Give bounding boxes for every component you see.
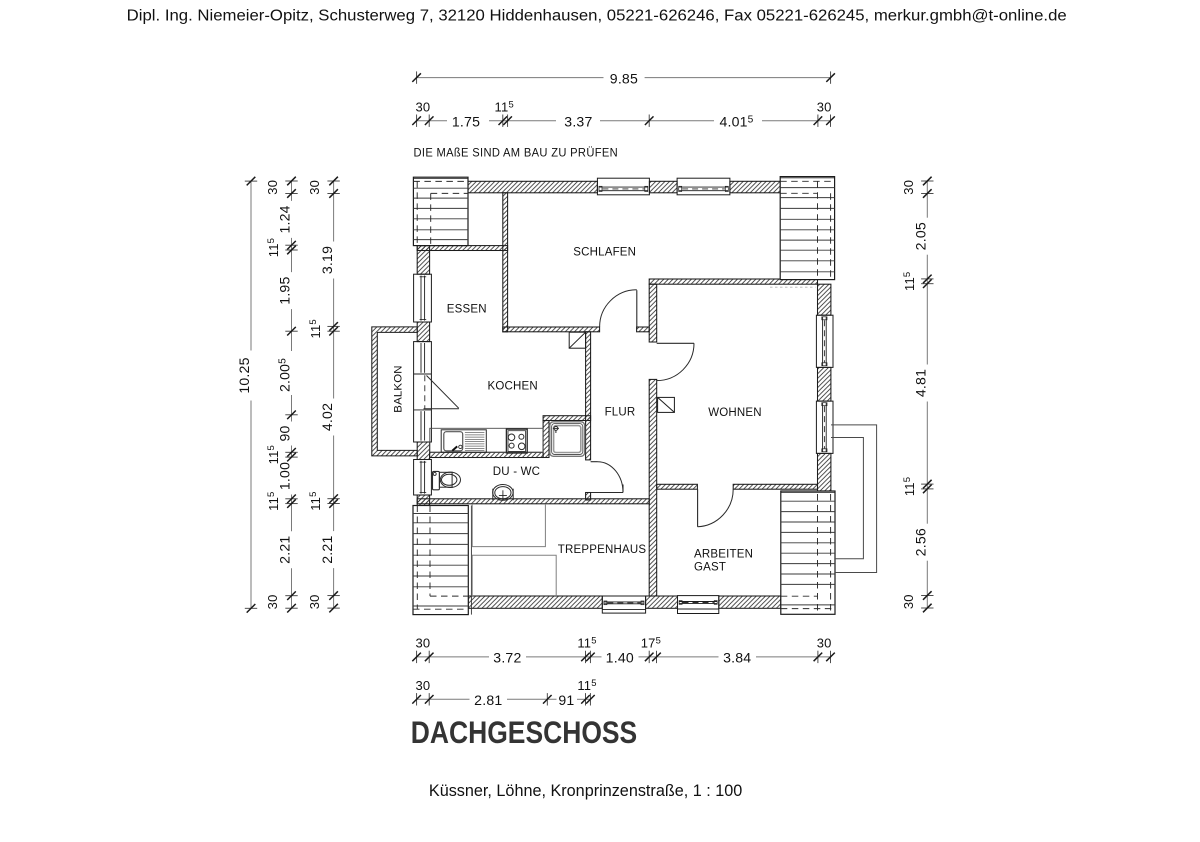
svg-text:4.81: 4.81 [913, 369, 929, 397]
svg-text:30: 30 [265, 180, 280, 195]
svg-text:FLUR: FLUR [605, 407, 636, 419]
svg-text:SCHLAFEN: SCHLAFEN [573, 247, 636, 259]
svg-text:Dipl. Ing. Niemeier-Opitz, Sch: Dipl. Ing. Niemeier-Opitz, Schusterweg 7… [127, 7, 1067, 24]
svg-text:4.02: 4.02 [319, 403, 335, 431]
svg-text:30: 30 [901, 180, 916, 195]
svg-text:ARBEITEN: ARBEITEN [694, 549, 753, 561]
svg-text:1.40: 1.40 [606, 650, 634, 666]
svg-text:ESSEN: ESSEN [447, 303, 487, 315]
svg-text:2.21: 2.21 [319, 535, 335, 563]
svg-text:30: 30 [415, 636, 430, 651]
svg-text:BALKON: BALKON [393, 365, 405, 412]
svg-text:2.21: 2.21 [277, 536, 293, 564]
svg-text:30: 30 [415, 99, 430, 114]
svg-text:9.85: 9.85 [610, 70, 638, 86]
svg-text:DACHGESCHOSS: DACHGESCHOSS [411, 714, 637, 750]
svg-text:1.95: 1.95 [277, 276, 293, 304]
svg-text:3.37: 3.37 [564, 113, 592, 129]
svg-text:3.19: 3.19 [319, 246, 335, 274]
svg-text:30: 30 [901, 594, 916, 609]
svg-text:DU - WC: DU - WC [493, 466, 540, 478]
svg-text:30: 30 [817, 99, 832, 114]
svg-text:1.00: 1.00 [277, 462, 293, 490]
svg-text:10.25: 10.25 [236, 357, 252, 393]
svg-text:30: 30 [415, 678, 430, 693]
svg-text:3.84: 3.84 [723, 650, 751, 666]
svg-text:3.72: 3.72 [493, 650, 521, 666]
svg-text:1.24: 1.24 [277, 205, 293, 233]
svg-text:2.56: 2.56 [913, 528, 929, 556]
svg-text:KOCHEN: KOCHEN [487, 381, 537, 393]
svg-text:DIE MAßE SIND AM BAU ZU PRÜFEN: DIE MAßE SIND AM BAU ZU PRÜFEN [414, 148, 619, 160]
svg-text:30: 30 [817, 636, 832, 651]
svg-text:TREPPENHAUS: TREPPENHAUS [558, 544, 647, 556]
svg-text:30: 30 [307, 180, 322, 195]
svg-text:2.81: 2.81 [474, 692, 502, 708]
svg-text:30: 30 [265, 594, 280, 609]
svg-text:WOHNEN: WOHNEN [708, 407, 762, 419]
svg-text:91: 91 [558, 692, 574, 708]
svg-text:GAST: GAST [694, 561, 726, 573]
svg-text:2.05: 2.05 [913, 222, 929, 250]
svg-text:90: 90 [277, 425, 293, 441]
svg-text:30: 30 [307, 594, 322, 609]
svg-text:Küssner, Löhne, Kronprinzenstr: Küssner, Löhne, Kronprinzenstraße, 1 : 1… [429, 782, 742, 800]
svg-text:1.75: 1.75 [452, 113, 480, 129]
